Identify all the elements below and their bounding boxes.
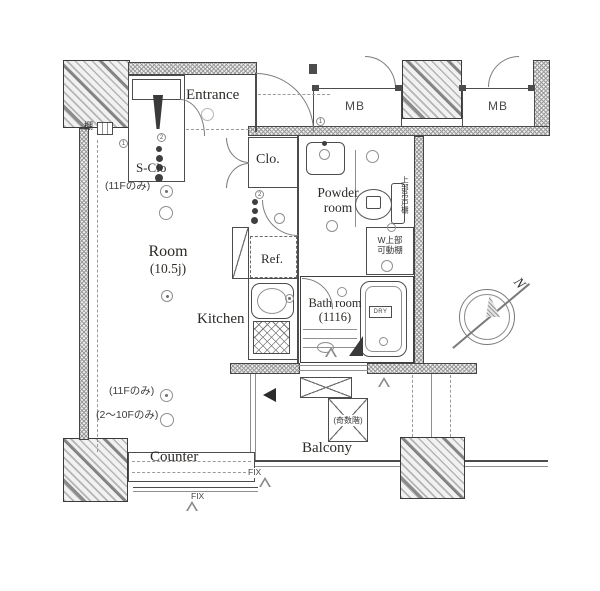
entrance-label: Entrance — [186, 87, 239, 104]
entrance-door-hinge — [309, 64, 317, 74]
room-label-line2: (10.5j) — [130, 261, 206, 276]
washer-label: W上部 可動棚 — [368, 236, 412, 255]
light-symbol — [201, 108, 214, 121]
balcony-window-line — [298, 365, 368, 366]
pillar-bottom-left — [63, 438, 128, 502]
boundary-dash-line — [97, 140, 98, 452]
shelf-icon-line — [102, 123, 103, 134]
floor2to10-note: (2～10Fのみ) — [96, 410, 158, 422]
room-label-line1: Room — [130, 243, 206, 261]
powder-room-label: Powder room — [303, 185, 373, 215]
bathroom-label-line1: Bath room — [302, 296, 368, 310]
shelf-icon — [97, 122, 113, 135]
ref-label: Ref. — [261, 252, 283, 267]
light-symbol — [160, 389, 173, 402]
fitting-dot — [156, 146, 162, 152]
wall-bottom-a — [230, 363, 300, 374]
mb-hinge — [528, 85, 535, 91]
odd-floor-equipment-box: (奇数階) — [328, 398, 368, 442]
corridor-dash — [258, 94, 330, 95]
balcony-rail-inner — [255, 466, 400, 467]
closet-label: Clo. — [256, 152, 280, 168]
balcony-partition-dash — [450, 375, 451, 437]
wall-top-right — [533, 60, 550, 136]
balcony-glass-line — [250, 374, 251, 461]
light-symbol — [160, 413, 174, 427]
closet-fold-door-arc — [226, 163, 249, 188]
section-arrow-icon — [263, 388, 276, 402]
fitting-dot — [252, 199, 258, 205]
fitting-dot — [252, 208, 258, 214]
floor11-note-lower: (11Fのみ) — [109, 386, 154, 398]
mb-hinge — [312, 85, 319, 91]
pillar-top-left — [63, 60, 130, 128]
balcony-glass-line — [255, 374, 256, 461]
tall-cabinet — [232, 227, 249, 279]
light-symbol — [274, 213, 285, 224]
floor11-note-upper: (11Fのみ) — [105, 181, 150, 193]
window-marker-triangle — [378, 377, 390, 387]
ac-unit-space — [300, 377, 352, 398]
wall-top — [128, 62, 257, 75]
marker-circle: 1 — [316, 117, 325, 126]
powder-room-label-line1: Powder — [303, 185, 373, 200]
fix-label-right: FIX — [247, 468, 262, 478]
kitchen-faucet — [285, 294, 294, 303]
closet-fold-door-arc — [226, 138, 249, 163]
balcony-label: Balcony — [302, 440, 352, 457]
bathtub-drain — [379, 337, 388, 346]
vanity-faucet — [322, 141, 327, 146]
pillar-balcony — [400, 437, 465, 499]
s-clo-label: S-Clo — [136, 161, 166, 176]
bath-shelf-line — [303, 329, 357, 330]
entrance-step-dash — [186, 129, 254, 130]
balcony-partition-line — [431, 374, 432, 437]
balcony-partition-dash — [412, 375, 413, 437]
marker-circle: 1 — [119, 139, 128, 148]
bathroom-label: Bath room (1116) — [302, 296, 368, 324]
floor-plan: DRY (奇数階) 1 2 1 2 — [0, 0, 600, 591]
mb-right-label: MB — [488, 100, 508, 113]
mb-hinge — [395, 85, 402, 91]
wall-left — [79, 128, 89, 440]
marker-circle: 2 — [255, 190, 264, 199]
mb-right-door-arc — [488, 56, 519, 87]
fix-label-bottom: FIX — [191, 492, 204, 502]
light-symbol — [161, 290, 173, 302]
window-marker-triangle — [259, 477, 271, 487]
counter-band-dash — [132, 472, 251, 473]
dry-unit-badge: DRY — [369, 306, 392, 318]
wall-bottom-b — [367, 363, 477, 374]
odd-floors-label: (奇数階) — [332, 415, 363, 426]
balcony-rail — [255, 460, 400, 462]
fix-window-bottom — [133, 487, 258, 488]
stove — [253, 321, 290, 354]
balcony-rail — [465, 460, 548, 462]
mb-left-door-arc — [365, 56, 396, 88]
shelf-icon-line — [107, 123, 108, 134]
light-symbol — [159, 206, 173, 220]
kitchen-label: Kitchen — [197, 311, 244, 328]
window-marker-triangle — [325, 347, 337, 357]
bath-shelf-line — [303, 338, 357, 339]
toilet-drain — [387, 223, 396, 232]
light-symbol — [160, 185, 173, 198]
mb-left-label: MB — [345, 100, 365, 113]
upper-cabinet-label: 上部吊戸棚 — [400, 176, 408, 226]
room-label: Room (10.5j) — [130, 243, 206, 276]
marker-circle: 2 — [157, 133, 166, 142]
wall-right — [414, 136, 424, 364]
vanity-bowl — [319, 149, 330, 160]
shelf-label: 棚 — [84, 121, 93, 131]
light-symbol — [326, 220, 338, 232]
fitting-dot — [251, 217, 258, 224]
kitchen-sink-bowl — [257, 288, 287, 314]
balcony-rail-inner — [465, 466, 548, 467]
counter-label: Counter — [150, 449, 198, 466]
light-symbol — [366, 150, 379, 163]
pillar-meter-box — [402, 60, 462, 119]
washer-drum — [381, 260, 393, 272]
entrance-door-arc — [256, 73, 314, 132]
window-marker-triangle — [186, 501, 198, 511]
dry-label: DRY — [373, 309, 387, 315]
powder-room-label-line2: room — [303, 200, 373, 215]
bathroom-label-line2: (1116) — [302, 310, 368, 324]
mb-hinge — [459, 85, 466, 91]
balcony-window-line — [298, 370, 368, 371]
north-label: N — [510, 275, 528, 292]
washer-label-line2: 可動棚 — [368, 246, 412, 256]
